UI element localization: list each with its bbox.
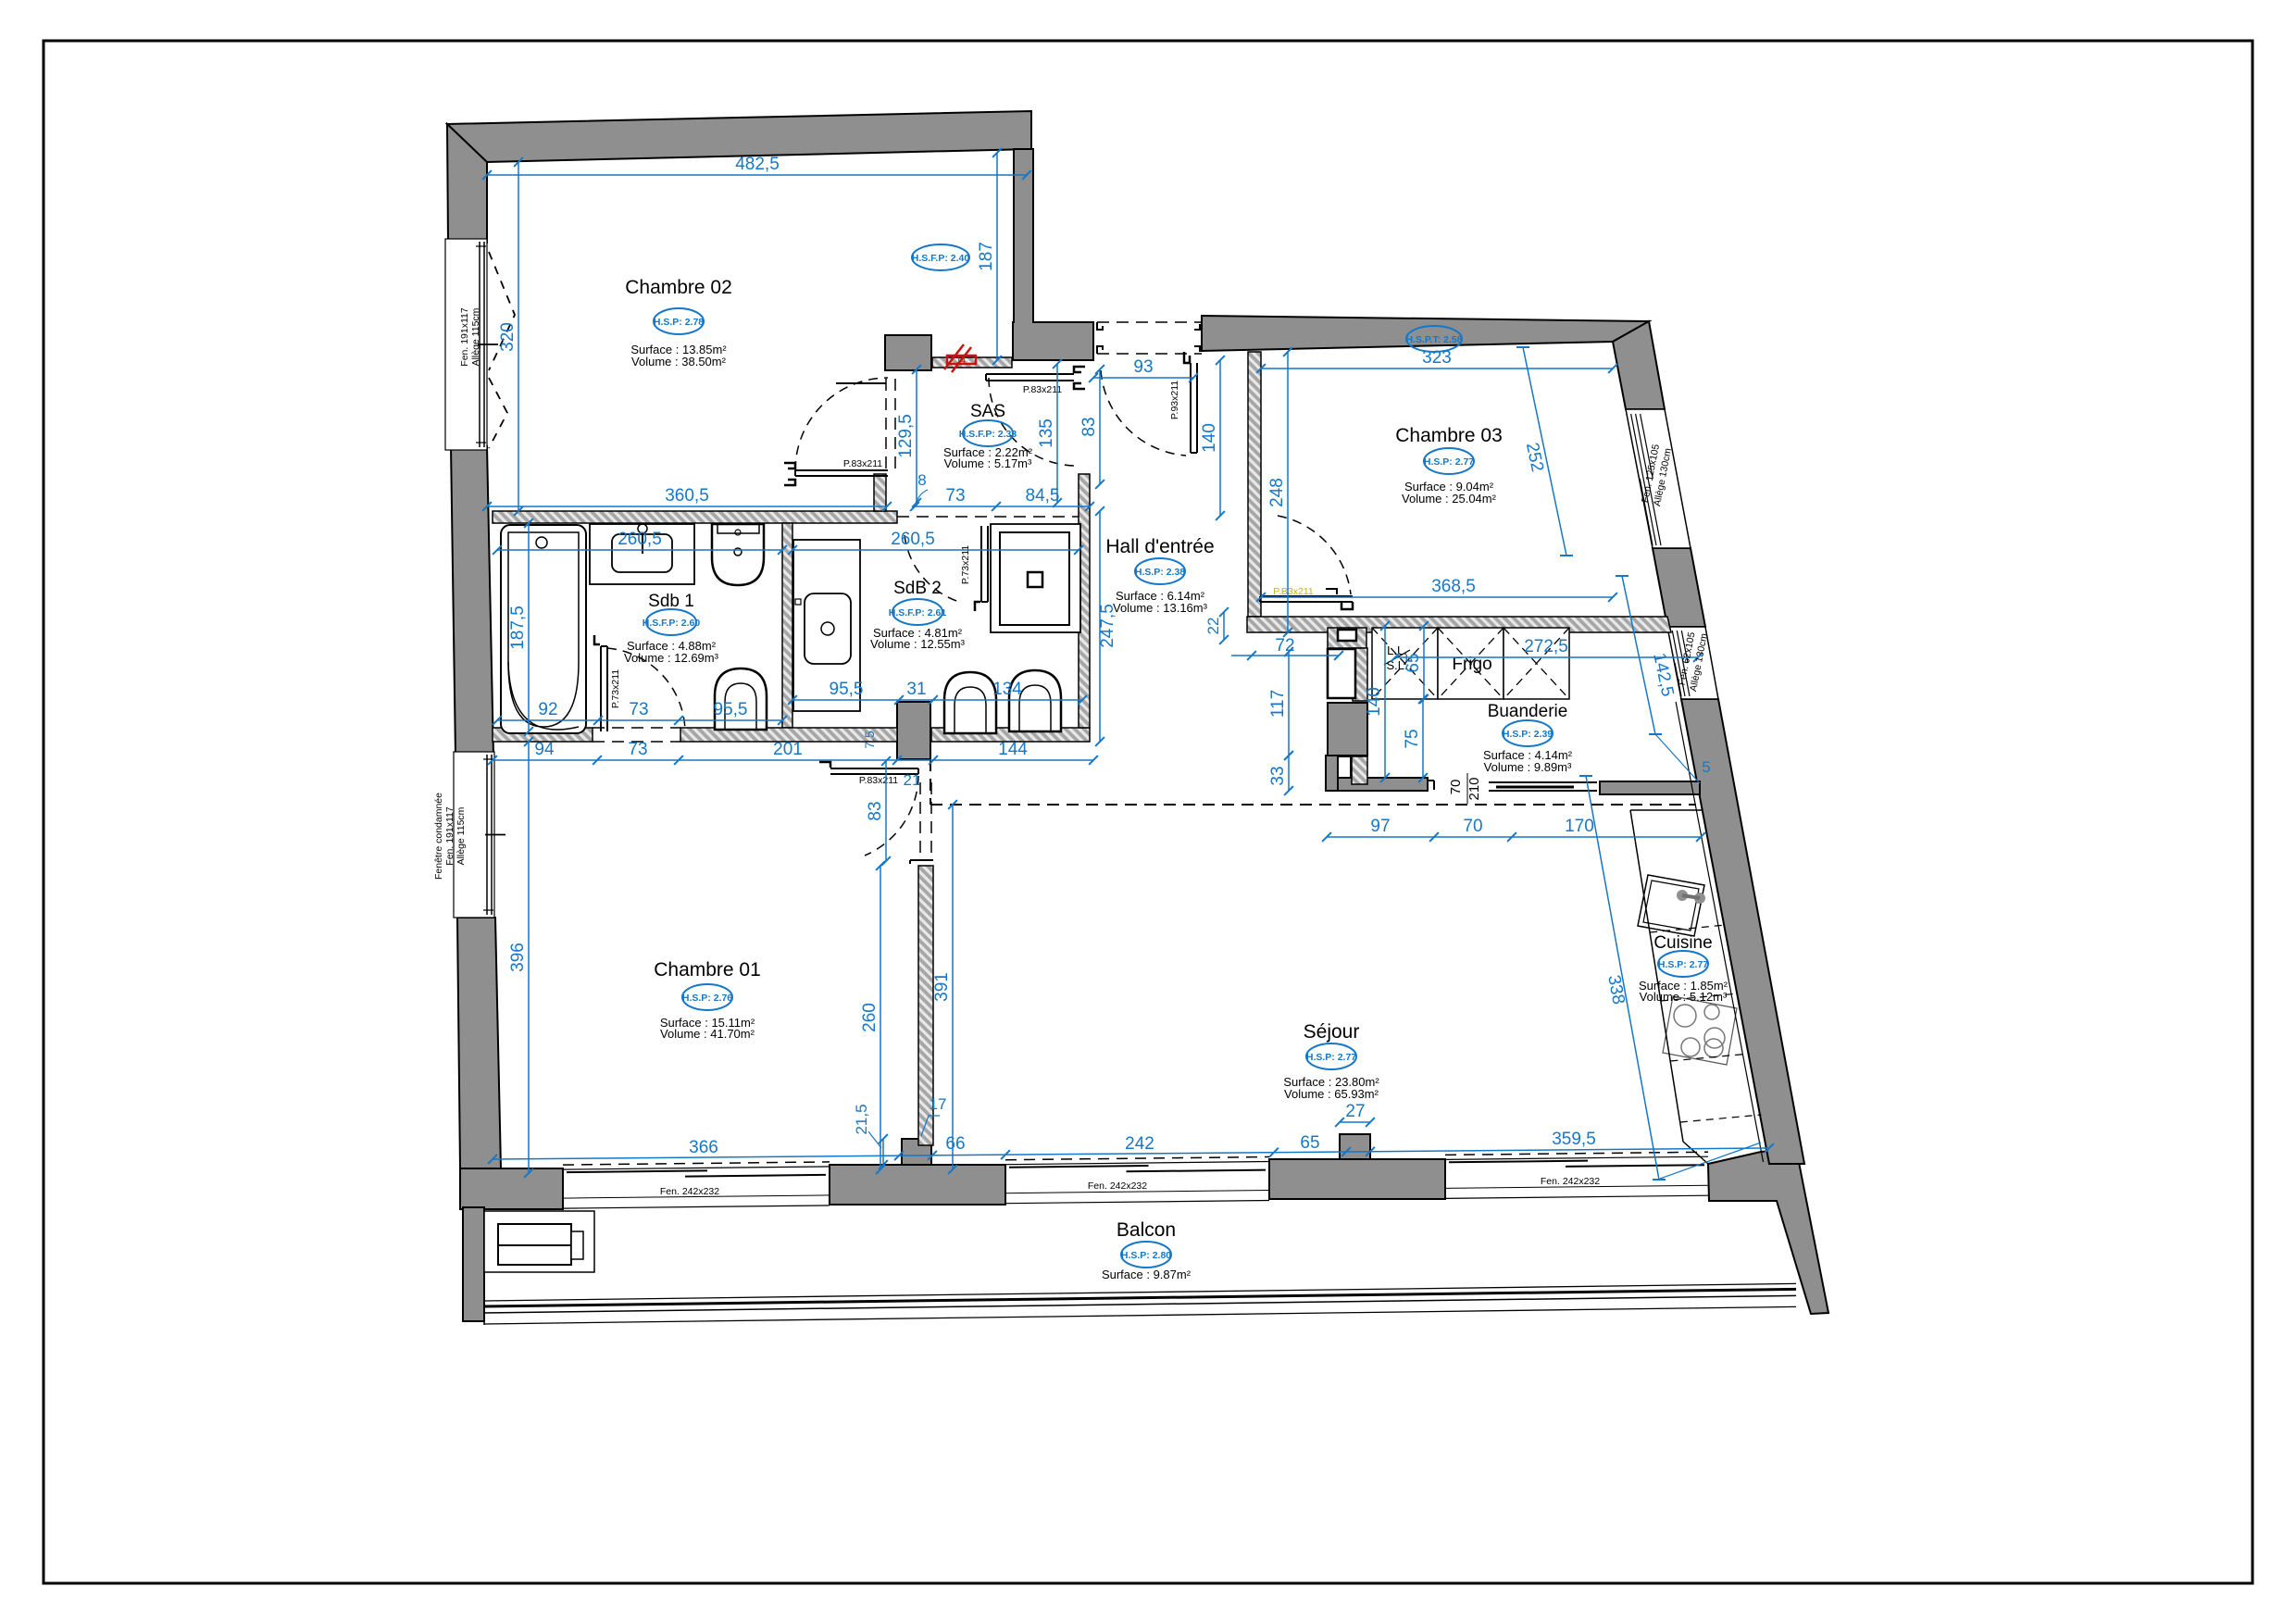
svg-text:75: 75 <box>1403 729 1422 748</box>
svg-text:242: 242 <box>1125 1134 1154 1154</box>
svg-text:SdB 2: SdB 2 <box>893 579 942 598</box>
svg-text:95,5: 95,5 <box>714 700 748 719</box>
svg-text:170: 170 <box>1565 817 1594 836</box>
svg-text:Cuisine: Cuisine <box>1653 933 1712 953</box>
svg-text:260,5: 260,5 <box>618 530 662 549</box>
svg-text:320: 320 <box>498 322 518 352</box>
svg-text:14: 14 <box>956 356 966 365</box>
svg-text:Volume : 12.69m³: Volume : 12.69m³ <box>624 651 719 665</box>
svg-text:73: 73 <box>945 486 965 506</box>
svg-text:21: 21 <box>904 771 921 789</box>
svg-text:31: 31 <box>906 680 926 699</box>
svg-text:359,5: 359,5 <box>1552 1130 1596 1149</box>
svg-text:Allège 115cm: Allège 115cm <box>470 307 481 366</box>
svg-text:P.83x211: P.83x211 <box>859 775 898 786</box>
svg-text:Volume : 38.50m²: Volume : 38.50m² <box>631 355 727 369</box>
svg-text:83: 83 <box>866 801 885 820</box>
svg-text:Buanderie: Buanderie <box>1488 702 1568 721</box>
svg-text:260,5: 260,5 <box>891 530 935 549</box>
svg-text:8: 8 <box>917 471 926 489</box>
svg-text:Chambre 01: Chambre 01 <box>654 959 761 981</box>
svg-text:H.S.F.P: 2.40: H.S.F.P: 2.40 <box>912 253 970 264</box>
svg-text:Volume : 9.89m³: Volume : 9.89m³ <box>1484 760 1572 774</box>
svg-text:368,5: 368,5 <box>1431 577 1476 596</box>
svg-text:Fen. 191x117: Fen. 191x117 <box>444 806 455 866</box>
svg-text:22: 22 <box>1204 618 1222 635</box>
svg-text:144: 144 <box>998 740 1028 759</box>
svg-text:134: 134 <box>992 680 1022 699</box>
svg-text:Volume : 12.55m³: Volume : 12.55m³ <box>870 637 966 651</box>
svg-text:Fen. 242x232: Fen. 242x232 <box>1088 1181 1147 1192</box>
svg-text:Séjour: Séjour <box>1304 1021 1360 1043</box>
svg-text:70: 70 <box>1448 780 1464 795</box>
svg-text:482,5: 482,5 <box>735 155 780 174</box>
svg-text:65: 65 <box>1404 653 1423 672</box>
svg-text:P.73x211: P.73x211 <box>960 545 971 584</box>
svg-text:Chambre 02: Chambre 02 <box>625 277 732 298</box>
svg-text:Fenêtre condamnée: Fenêtre condamnée <box>433 793 444 880</box>
svg-text:P.B3x211: P.B3x211 <box>1273 586 1314 597</box>
svg-text:P.83x211: P.83x211 <box>843 458 882 469</box>
svg-text:P.83x211: P.83x211 <box>1023 384 1062 395</box>
svg-text:H.S.F.P: 2.60: H.S.F.P: 2.60 <box>643 618 701 629</box>
svg-text:70: 70 <box>1463 817 1482 836</box>
svg-text:Volume : 5.12m³: Volume : 5.12m³ <box>1640 990 1728 1004</box>
svg-text:7,5: 7,5 <box>862 731 877 749</box>
svg-text:72: 72 <box>1275 636 1294 656</box>
svg-text:210: 210 <box>1466 777 1482 800</box>
svg-text:97: 97 <box>1370 817 1390 836</box>
svg-text:187,5: 187,5 <box>508 606 528 650</box>
svg-text:93: 93 <box>1133 357 1153 377</box>
svg-text:5: 5 <box>1702 758 1710 776</box>
svg-text:94: 94 <box>534 740 555 759</box>
svg-text:73: 73 <box>629 700 648 719</box>
svg-text:P.93x211: P.93x211 <box>1169 381 1180 419</box>
svg-text:Allège 115cm: Allège 115cm <box>455 806 467 865</box>
svg-text:366: 366 <box>689 1138 718 1157</box>
svg-text:H.S.P.T: 2.58: H.S.P.T: 2.58 <box>1405 334 1462 345</box>
svg-text:H.S.P: 2.78: H.S.P: 2.78 <box>654 317 704 328</box>
svg-text:H.S.F.P: 2.33: H.S.F.P: 2.33 <box>959 429 1017 440</box>
svg-text:33: 33 <box>1268 766 1288 785</box>
svg-text:201: 201 <box>773 740 803 759</box>
svg-text:Sdb 1: Sdb 1 <box>648 592 694 611</box>
svg-text:H.S.F.P: 2.61: H.S.F.P: 2.61 <box>889 607 947 618</box>
svg-text:140: 140 <box>1365 687 1384 717</box>
svg-text:Volume : 65.93m²: Volume : 65.93m² <box>1284 1087 1379 1101</box>
svg-text:Fen. 242x232: Fen. 242x232 <box>660 1186 719 1197</box>
svg-text:92: 92 <box>538 700 557 719</box>
svg-text:27: 27 <box>1345 1102 1365 1121</box>
svg-text:260: 260 <box>860 1003 880 1032</box>
svg-text:H.S.P: 2.77: H.S.P: 2.77 <box>1306 1052 1356 1063</box>
svg-text:117: 117 <box>1268 690 1288 718</box>
svg-text:H.S.P: 2.76: H.S.P: 2.76 <box>682 993 732 1004</box>
svg-text:65: 65 <box>1300 1133 1319 1153</box>
svg-text:248: 248 <box>1267 478 1287 507</box>
svg-text:83: 83 <box>1079 417 1099 436</box>
svg-text:H.S.P: 2.39: H.S.P: 2.39 <box>1503 729 1553 740</box>
svg-text:135: 135 <box>1037 418 1056 448</box>
svg-text:73: 73 <box>628 740 647 759</box>
svg-text:H.S.P: 2.77: H.S.P: 2.77 <box>1424 456 1474 468</box>
svg-text:140: 140 <box>1200 423 1219 453</box>
svg-text:21,5: 21,5 <box>853 1104 870 1134</box>
svg-text:P.73x211: P.73x211 <box>610 669 621 708</box>
svg-text:Volume : 41.70m²: Volume : 41.70m² <box>660 1027 755 1041</box>
svg-text:Chambre 03: Chambre 03 <box>1395 425 1503 446</box>
svg-text:Volume : 13.16m³: Volume : 13.16m³ <box>1113 601 1208 615</box>
svg-text:129,5: 129,5 <box>896 414 916 458</box>
svg-text:272,5: 272,5 <box>1524 637 1568 656</box>
svg-text:84,5: 84,5 <box>1026 486 1060 506</box>
svg-text:Fen. 242x232: Fen. 242x232 <box>1541 1176 1600 1187</box>
svg-text:H.S.P: 2.77: H.S.P: 2.77 <box>1658 959 1708 970</box>
svg-text:17: 17 <box>930 1095 947 1113</box>
svg-text:66: 66 <box>945 1134 965 1154</box>
svg-text:Fen. 191x117: Fen. 191x117 <box>459 307 470 367</box>
svg-text:H.S.P: 2.38: H.S.P: 2.38 <box>1135 567 1185 578</box>
svg-text:Balcon: Balcon <box>1117 1219 1176 1241</box>
svg-text:Volume : 25.04m²: Volume : 25.04m² <box>1402 492 1497 506</box>
svg-text:360,5: 360,5 <box>665 486 709 506</box>
svg-text:H.S.P: 2.80: H.S.P: 2.80 <box>1121 1250 1171 1261</box>
svg-text:Surface : 9.87m²: Surface : 9.87m² <box>1102 1268 1192 1281</box>
svg-text:SAS: SAS <box>970 402 1005 421</box>
svg-text:396: 396 <box>508 943 528 972</box>
svg-text:187: 187 <box>977 242 996 271</box>
svg-text:Hall d'entrée: Hall d'entrée <box>1105 536 1214 557</box>
svg-text:391: 391 <box>932 972 952 1002</box>
svg-text:95,5: 95,5 <box>830 680 864 699</box>
svg-text:Volume : 5.17m³: Volume : 5.17m³ <box>944 456 1032 470</box>
